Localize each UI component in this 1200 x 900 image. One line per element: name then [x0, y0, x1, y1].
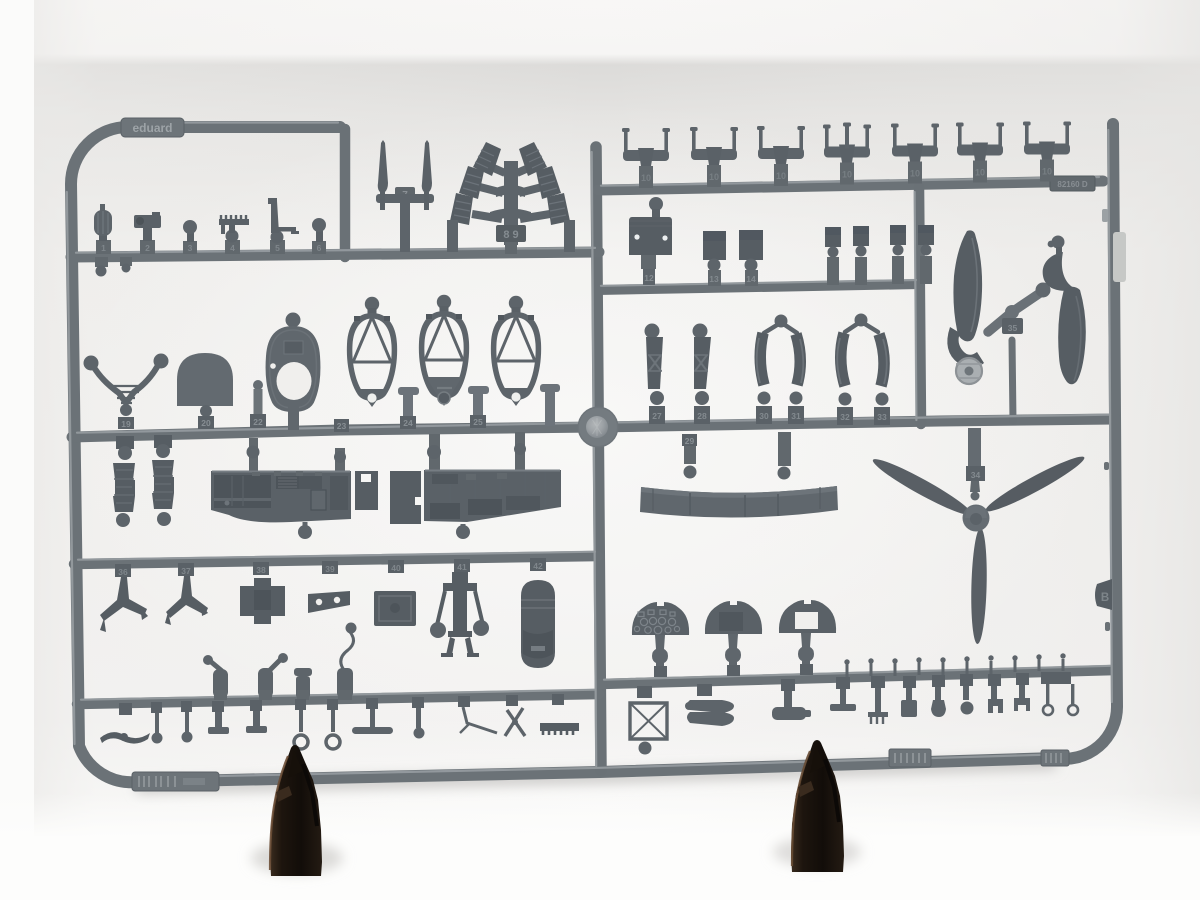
svg-text:27: 27 [652, 411, 662, 421]
svg-text:25: 25 [473, 417, 483, 427]
svg-text:31: 31 [791, 411, 801, 421]
svg-text:39: 39 [325, 564, 335, 574]
svg-text:23: 23 [337, 421, 347, 431]
svg-text:38: 38 [256, 565, 266, 575]
svg-text:eduard: eduard [132, 121, 172, 135]
svg-text:6: 6 [317, 243, 322, 253]
svg-text:8 9: 8 9 [503, 229, 518, 241]
svg-text:22: 22 [253, 417, 263, 427]
svg-text:3: 3 [188, 243, 193, 253]
svg-text:42: 42 [533, 561, 543, 571]
svg-text:40: 40 [391, 563, 401, 573]
svg-text:12: 12 [644, 273, 654, 283]
svg-text:B: B [1101, 592, 1109, 604]
svg-text:32: 32 [840, 412, 850, 422]
svg-text:35: 35 [1008, 323, 1018, 333]
svg-text:34: 34 [971, 470, 981, 480]
svg-text:1: 1 [101, 243, 106, 253]
svg-text:13: 13 [709, 274, 719, 284]
svg-text:2: 2 [145, 243, 150, 253]
svg-text:28: 28 [697, 411, 707, 421]
svg-text:19: 19 [121, 419, 131, 429]
svg-text:29: 29 [685, 436, 695, 446]
svg-text:20: 20 [201, 418, 211, 428]
svg-text:37: 37 [181, 566, 191, 576]
svg-text:30: 30 [759, 411, 769, 421]
svg-text:41: 41 [457, 562, 467, 572]
svg-text:24: 24 [403, 418, 413, 428]
svg-text:14: 14 [746, 274, 756, 284]
svg-text:82160 D: 82160 D [1057, 180, 1087, 189]
svg-text:36: 36 [118, 567, 128, 577]
svg-text:4: 4 [230, 243, 235, 253]
svg-text:5: 5 [275, 243, 280, 253]
svg-text:33: 33 [877, 412, 887, 422]
